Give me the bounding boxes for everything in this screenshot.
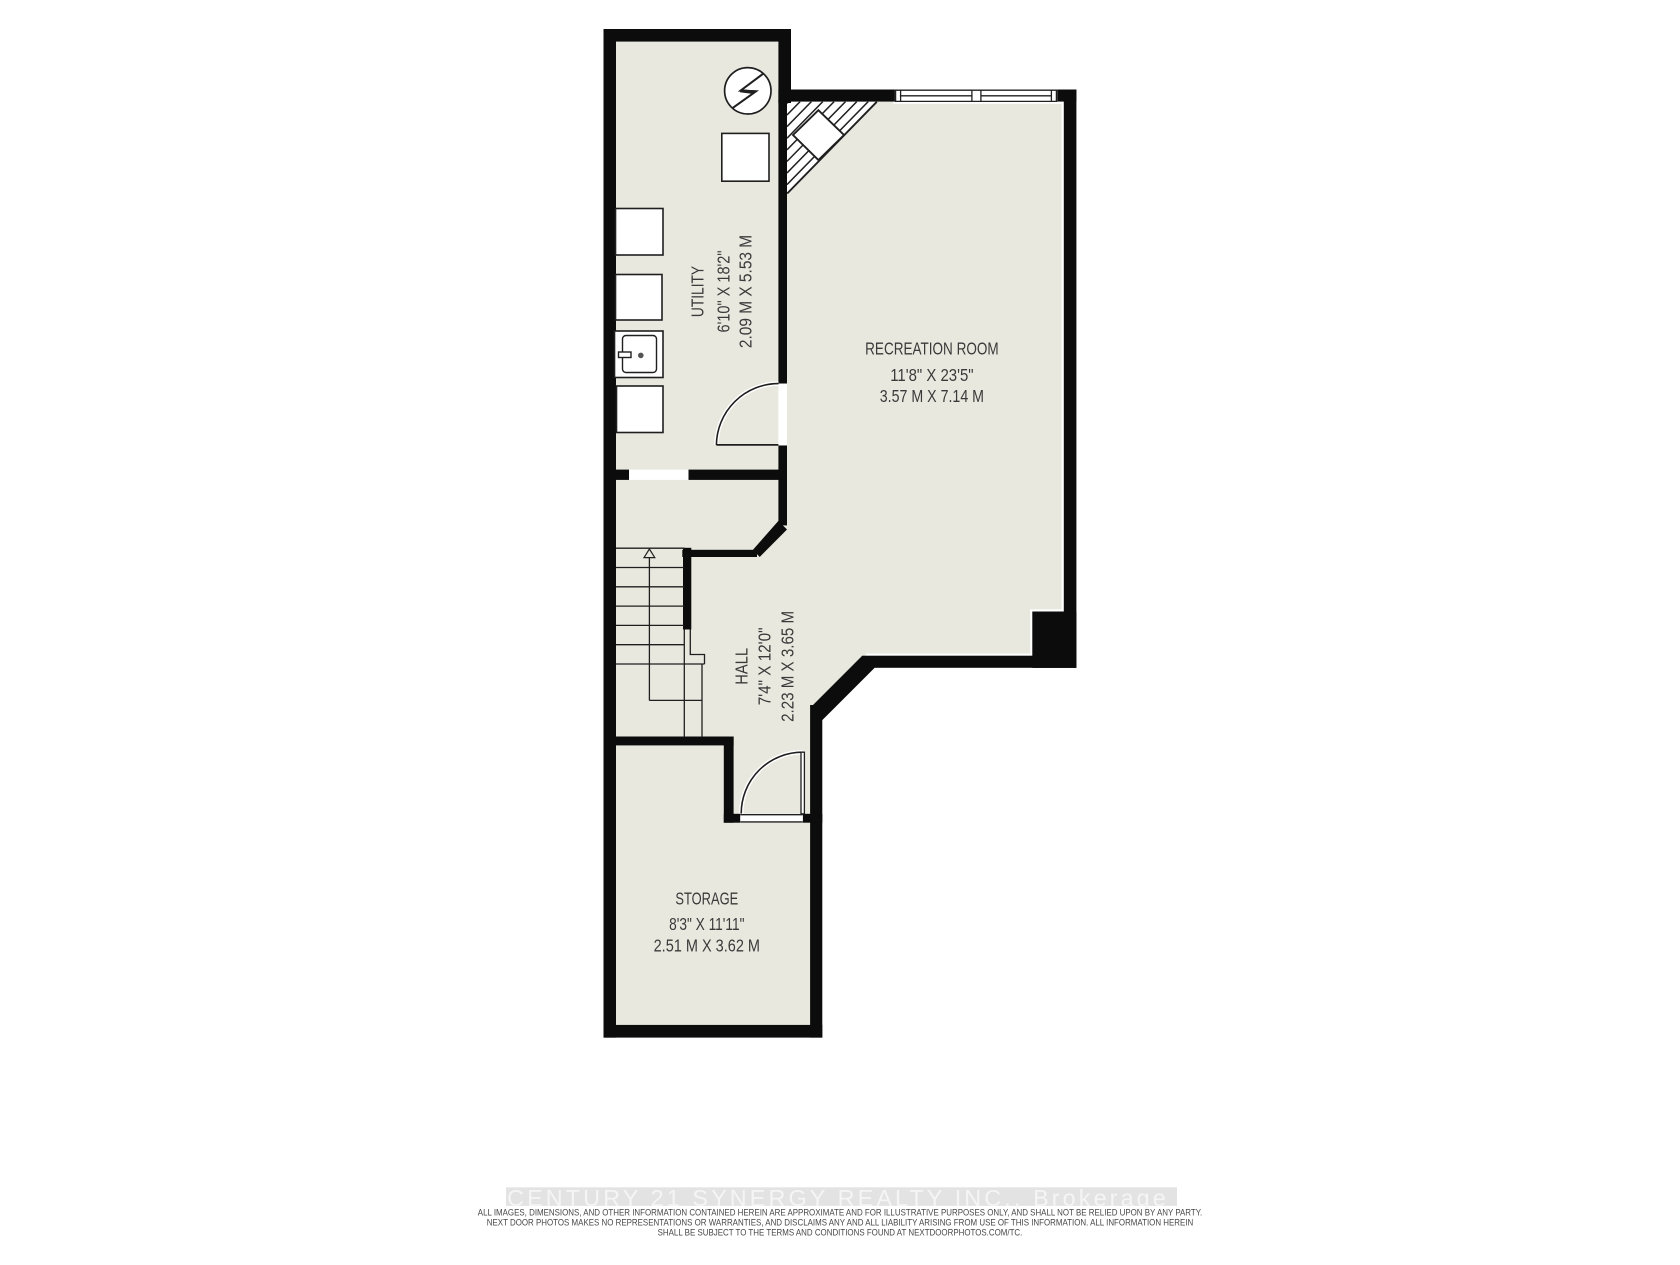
svg-text:6'10" X 18'2": 6'10" X 18'2" <box>714 250 734 332</box>
svg-text:RECREATION ROOM: RECREATION ROOM <box>865 340 999 359</box>
svg-text:11'8" X 23'5": 11'8" X 23'5" <box>890 366 974 385</box>
svg-text:2.09 M X 5.53 M: 2.09 M X 5.53 M <box>736 235 756 348</box>
svg-text:2.23 M X 3.65 M: 2.23 M X 3.65 M <box>778 611 797 722</box>
svg-text:STORAGE: STORAGE <box>675 889 738 908</box>
svg-text:HALL: HALL <box>732 648 752 685</box>
svg-text:2.51 M X 3.62 M: 2.51 M X 3.62 M <box>654 936 760 956</box>
svg-text:UTILITY: UTILITY <box>689 266 708 318</box>
svg-text:8'3" X 11'11": 8'3" X 11'11" <box>669 916 744 935</box>
svg-text:3.57 M X 7.14 M: 3.57 M X 7.14 M <box>880 388 984 407</box>
svg-text:ALL IMAGES, DIMENSIONS, AND OT: ALL IMAGES, DIMENSIONS, AND OTHER INFORM… <box>478 1207 1202 1218</box>
svg-text:NEXT DOOR PHOTOS MAKES NO REPR: NEXT DOOR PHOTOS MAKES NO REPRESENTATION… <box>487 1217 1193 1228</box>
svg-text:7'4" X 12'0": 7'4" X 12'0" <box>756 627 775 705</box>
svg-text:SHALL BE SUBJECT TO THE TERMS: SHALL BE SUBJECT TO THE TERMS AND CONDIT… <box>658 1227 1023 1238</box>
